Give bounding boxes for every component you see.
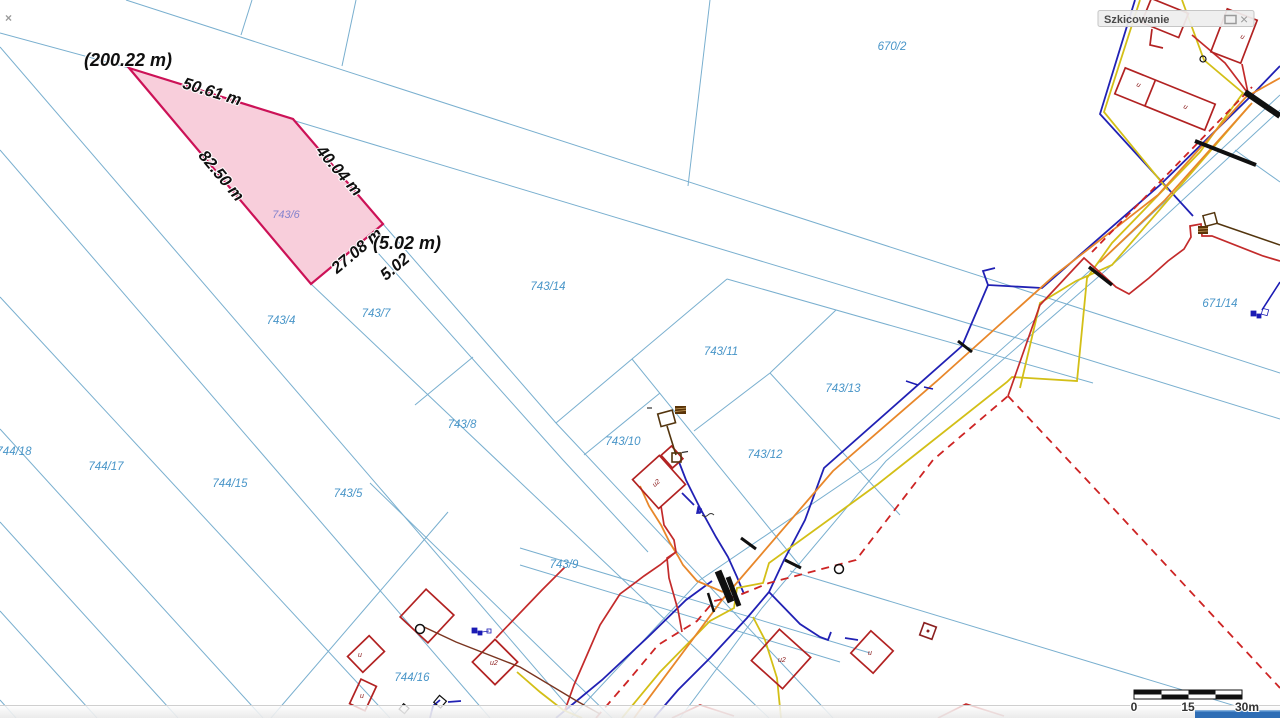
svg-text:Szkicowanie: Szkicowanie xyxy=(1104,14,1169,26)
svg-text:744/18: 744/18 xyxy=(0,446,32,458)
svg-text:0: 0 xyxy=(1131,700,1138,714)
svg-text:743/11: 743/11 xyxy=(704,346,738,358)
svg-text:b: b xyxy=(697,506,702,515)
svg-text:(200.22 m): (200.22 m) xyxy=(84,50,172,70)
svg-text:u: u xyxy=(358,652,362,659)
svg-text:743/9: 743/9 xyxy=(550,559,579,571)
svg-text:×: × xyxy=(5,11,12,25)
svg-text:×: × xyxy=(1240,11,1248,27)
svg-text:743/14: 743/14 xyxy=(530,281,565,293)
svg-text:743/5: 743/5 xyxy=(334,488,363,500)
svg-text:670/2: 670/2 xyxy=(878,41,907,53)
svg-text:743/12: 743/12 xyxy=(747,449,783,461)
svg-text:u2: u2 xyxy=(490,660,498,667)
svg-text:u: u xyxy=(868,650,872,657)
svg-text:743/10: 743/10 xyxy=(605,436,641,448)
svg-text:743/13: 743/13 xyxy=(825,383,861,395)
svg-text:u: u xyxy=(360,693,364,700)
svg-text:(5.02 m): (5.02 m) xyxy=(373,233,441,253)
svg-text:671/14: 671/14 xyxy=(1202,298,1237,310)
svg-text:743/8: 743/8 xyxy=(448,419,477,431)
svg-text:30m: 30m xyxy=(1235,700,1259,714)
svg-text:743/6: 743/6 xyxy=(272,209,300,221)
svg-text:15: 15 xyxy=(1181,700,1195,714)
svg-text:744/17: 744/17 xyxy=(88,461,124,473)
svg-text:743/4: 743/4 xyxy=(267,315,296,327)
svg-text:u2: u2 xyxy=(778,657,786,664)
svg-text:743/7: 743/7 xyxy=(362,308,391,320)
svg-text:744/16: 744/16 xyxy=(394,672,430,684)
svg-text:744/15: 744/15 xyxy=(212,478,248,490)
